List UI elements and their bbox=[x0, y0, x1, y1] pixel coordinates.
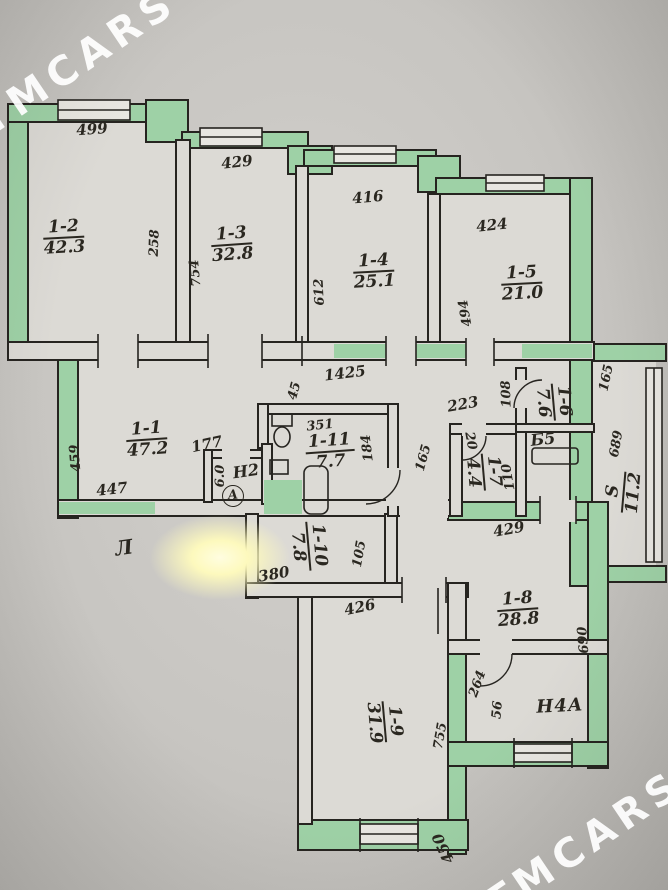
room-label-1-1: 1-1 47.2 bbox=[125, 419, 169, 460]
dim-447: 447 bbox=[96, 481, 129, 500]
room-label-1-4: 1-4 25.1 bbox=[352, 252, 395, 293]
room-area: 21.0 bbox=[501, 283, 543, 304]
room-label-1-2: 1-2 42.3 bbox=[42, 218, 85, 259]
room-label-1-3: 1-3 32.8 bbox=[210, 224, 254, 265]
dim-424: 424 bbox=[476, 217, 509, 236]
room-label-1-7: 1-7 4.4 bbox=[462, 452, 504, 492]
dim-56: 56 bbox=[490, 700, 505, 719]
room-area: 42.3 bbox=[43, 237, 85, 258]
room-area: 11.2 bbox=[623, 471, 645, 514]
room-label-h4: Н4А bbox=[536, 696, 584, 717]
room-area: 7.6 bbox=[532, 384, 554, 422]
dim-429-room13: 429 bbox=[221, 154, 254, 173]
room-label-balcony-s: S 11.2 bbox=[603, 470, 645, 515]
room-area: 32.8 bbox=[211, 244, 254, 266]
dim-184: 184 bbox=[360, 434, 377, 463]
room-area: 4.4 bbox=[462, 454, 484, 492]
dim-690: 690 bbox=[576, 626, 592, 654]
room-area: 25.1 bbox=[353, 271, 395, 292]
stray-pen-mark: Л bbox=[114, 536, 134, 559]
room-label-1-6: 1-6 7.6 bbox=[532, 382, 574, 422]
dim-754: 754 bbox=[188, 259, 204, 287]
dim-499: 499 bbox=[76, 121, 108, 139]
dim-20: 20 bbox=[462, 431, 479, 451]
light-glare bbox=[150, 515, 290, 600]
room-area: 31.9 bbox=[363, 701, 385, 744]
room-label-1-11: 1-11 7.7 bbox=[304, 431, 355, 473]
room-label-b5: Б5 bbox=[530, 430, 556, 449]
dim-6-0: 6.0 bbox=[214, 465, 228, 488]
room-area: 28.8 bbox=[497, 609, 540, 631]
floor-plan-photo: 499 1-2 42.3 258 754 429 1-3 32.8 612 41… bbox=[0, 0, 668, 890]
dim-459: 459 bbox=[68, 444, 84, 472]
dim-612: 612 bbox=[312, 278, 327, 306]
dim-416: 416 bbox=[352, 189, 385, 207]
room-area: 47.2 bbox=[126, 439, 169, 461]
room-label-1-10: 1-10 7.8 bbox=[287, 520, 330, 572]
room-label-1-5: 1-5 21.0 bbox=[500, 264, 543, 305]
room-label-1-8: 1-8 28.8 bbox=[496, 589, 540, 630]
room-label-1-9: 1-9 31.9 bbox=[363, 700, 405, 745]
room-label-h2: Н2 bbox=[232, 462, 260, 482]
dim-258: 258 bbox=[148, 229, 163, 257]
room-area: 7.7 bbox=[306, 451, 356, 473]
dim-108: 108 bbox=[500, 380, 515, 408]
floor-fill bbox=[18, 112, 656, 838]
